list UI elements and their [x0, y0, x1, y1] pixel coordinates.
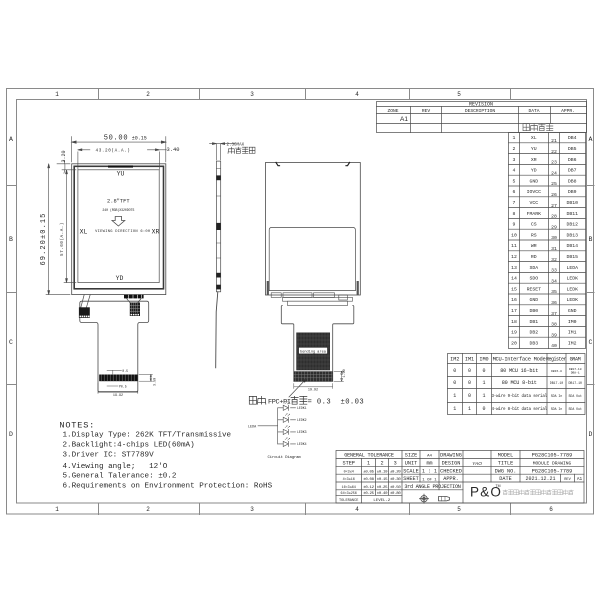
svg-text:20: 20 — [511, 340, 517, 346]
svg-text:DB6: DB6 — [568, 157, 577, 163]
svg-text:IM2: IM2 — [568, 340, 577, 346]
svg-text:6.Requirements on Environment: 6.Requirements on Environment Protection… — [63, 483, 273, 491]
svg-text:13: 13 — [511, 265, 517, 271]
svg-text:DB2: DB2 — [529, 330, 538, 336]
svg-text:69.20±0.15: 69.20±0.15 — [40, 212, 48, 265]
svg-text:24: 24 — [551, 170, 557, 176]
svg-text:15: 15 — [511, 286, 517, 292]
svg-text:SHEET: SHEET — [403, 476, 419, 482]
svg-text:0<3≤4: 0<3≤4 — [344, 469, 354, 474]
svg-text:4.Viewing angle; 12'O: 4.Viewing angle; 12'O — [63, 463, 168, 471]
svg-text:2021.12.21: 2021.12.21 — [525, 476, 555, 482]
svg-text:ZONE: ZONE — [387, 108, 398, 114]
svg-text:240 (RGB)X320DOTS: 240 (RGB)X320DOTS — [102, 208, 134, 212]
svg-text:2: 2 — [146, 506, 150, 513]
svg-text:1: 1 — [453, 406, 456, 412]
svg-text:3.40: 3.40 — [167, 147, 180, 153]
svg-text:3.50: 3.50 — [154, 378, 158, 386]
svg-text:0: 0 — [453, 380, 456, 386]
svg-text:SDO: SDO — [529, 276, 538, 282]
svg-text:35: 35 — [551, 289, 557, 295]
svg-text:VIEWING DIRECTION 6:00: VIEWING DIRECTION 6:00 — [95, 230, 150, 234]
svg-text:DB17-10: DB17-10 — [569, 381, 582, 385]
svg-text:10: 10 — [511, 232, 517, 238]
svg-text:1 : 1: 1 : 1 — [422, 468, 437, 474]
svg-text:UNIT: UNIT — [405, 461, 417, 467]
svg-text:1.00: 1.00 — [343, 369, 347, 377]
svg-text:DATA: DATA — [528, 108, 539, 114]
svg-text:39: 39 — [551, 332, 557, 338]
svg-text:17: 17 — [511, 308, 517, 314]
svg-text:3.20: 3.20 — [61, 150, 67, 162]
svg-text:DB8: DB8 — [568, 178, 577, 184]
svg-text:43.20(A.A.): 43.20(A.A.) — [96, 148, 131, 153]
svg-text:±0.05: ±0.05 — [363, 470, 374, 474]
svg-text:YU: YU — [531, 146, 537, 152]
svg-text:19: 19 — [511, 330, 517, 336]
svg-text:APPR.: APPR. — [561, 108, 575, 114]
svg-text:16: 16 — [511, 297, 517, 303]
svg-text:2: 2 — [380, 461, 383, 467]
svg-text:±0.15: ±0.15 — [132, 136, 147, 142]
svg-text:0: 0 — [468, 380, 471, 386]
svg-text:2.8"TFT: 2.8"TFT — [107, 199, 130, 205]
svg-text:A: A — [9, 136, 13, 143]
svg-text:DESIGN: DESIGN — [442, 461, 461, 467]
svg-text:26: 26 — [551, 192, 557, 198]
svg-text:XR: XR — [152, 229, 160, 236]
svg-text:0.5: 0.5 — [122, 369, 128, 373]
svg-text:DB13: DB13 — [566, 232, 578, 238]
svg-text:19.92: 19.92 — [308, 389, 318, 393]
svg-text:IM1: IM1 — [568, 330, 577, 336]
svg-text:0: 0 — [468, 393, 471, 399]
svg-text:38: 38 — [551, 322, 557, 328]
svg-text:P0.5: P0.5 — [119, 385, 127, 389]
svg-text:B: B — [589, 236, 593, 243]
svg-text:28: 28 — [551, 214, 557, 220]
svg-text:DB5: DB5 — [568, 146, 577, 152]
svg-text:22: 22 — [551, 149, 557, 155]
svg-text:27: 27 — [551, 203, 557, 209]
svg-text:50.00: 50.00 — [104, 135, 129, 143]
svg-text:31: 31 — [551, 246, 557, 252]
svg-text:DWG NO.: DWG NO. — [495, 468, 517, 474]
svg-text:YU: YU — [117, 171, 125, 178]
svg-text:LEDA: LEDA — [566, 265, 578, 271]
svg-text:4: 4 — [513, 168, 516, 174]
svg-text:B: B — [9, 236, 13, 243]
svg-text:SDA Out: SDA Out — [569, 394, 582, 398]
svg-text:YAO: YAO — [472, 461, 482, 467]
svg-text:30: 30 — [551, 235, 557, 241]
svg-text:3: 3 — [250, 91, 254, 98]
svg-text:DB1: DB1 — [529, 319, 538, 325]
svg-text:3: 3 — [250, 506, 254, 513]
svg-text:LEDK4: LEDK4 — [297, 442, 307, 446]
svg-text:PG28C105-7789: PG28C105-7789 — [532, 468, 572, 474]
svg-text:IOVCC: IOVCC — [527, 189, 542, 195]
svg-text:2.30MAX: 2.30MAX — [227, 143, 245, 147]
svg-text:XL: XL — [80, 229, 88, 236]
svg-text:IM0: IM0 — [479, 357, 488, 363]
svg-text:XL: XL — [531, 135, 537, 141]
svg-text:mm: mm — [426, 461, 432, 467]
svg-text:TM: TM — [496, 484, 501, 488]
svg-text:MCU-Interface Mode: MCU-Interface Mode — [493, 357, 546, 363]
svg-text:YD: YD — [531, 168, 537, 174]
svg-text:1: 1 — [453, 393, 456, 399]
svg-text:±0.20: ±0.20 — [390, 470, 401, 474]
svg-text:DB10: DB10 — [566, 200, 578, 206]
svg-text:GND: GND — [568, 308, 577, 314]
svg-text:4: 4 — [355, 91, 359, 98]
svg-text:D: D — [589, 431, 593, 438]
svg-text:9: 9 — [513, 222, 516, 228]
svg-text:6: 6 — [513, 189, 516, 195]
svg-text:2.Backlight:4-chips LED(60mA): 2.Backlight:4-chips LED(60mA) — [63, 442, 195, 450]
svg-text:3: 3 — [394, 461, 397, 467]
svg-text:DB15: DB15 — [566, 254, 578, 260]
svg-text:34: 34 — [551, 278, 557, 284]
svg-text:DESCRIPTION: DESCRIPTION — [465, 108, 496, 114]
svg-text:1: 1 — [513, 135, 516, 141]
svg-text:±0.80: ±0.80 — [390, 492, 401, 496]
svg-text:DATE: DATE — [499, 476, 511, 482]
svg-text:4<3≤16: 4<3≤16 — [343, 477, 355, 482]
svg-text:32: 32 — [551, 257, 557, 263]
svg-text:1: 1 — [482, 393, 485, 399]
svg-text:GND: GND — [529, 178, 538, 184]
svg-text:1 OF 1: 1 OF 1 — [422, 478, 437, 482]
svg-text:LEDK2: LEDK2 — [297, 418, 307, 422]
svg-text:REVISION: REVISION — [469, 102, 493, 108]
svg-text:16<3≤64: 16<3≤64 — [342, 485, 356, 490]
svg-text:11: 11 — [511, 243, 517, 249]
svg-text:A4: A4 — [427, 455, 432, 459]
svg-text:0: 0 — [468, 368, 471, 374]
svg-text:IM0: IM0 — [568, 319, 577, 325]
svg-text:RS: RS — [531, 232, 537, 238]
svg-text:DB4: DB4 — [568, 135, 577, 141]
svg-text:18: 18 — [511, 319, 517, 325]
svg-text:SDA In: SDA In — [551, 394, 563, 398]
svg-text:SIZE: SIZE — [405, 453, 417, 459]
svg-text:C: C — [589, 339, 593, 346]
svg-text:LEDK: LEDK — [566, 297, 578, 303]
svg-text:1.Display Type: 262K TFT/Trans: 1.Display Type: 262K TFT/Transmissive — [63, 432, 232, 440]
svg-text:LEDK3: LEDK3 — [297, 430, 307, 434]
svg-text:MODEL: MODEL — [498, 453, 514, 459]
svg-text:DRAWING: DRAWING — [440, 453, 462, 459]
svg-text:4: 4 — [355, 506, 359, 513]
svg-text:±0.25: ±0.25 — [377, 486, 388, 490]
svg-text:±0.15: ±0.15 — [377, 478, 388, 482]
svg-text:DB12: DB12 — [566, 222, 578, 228]
svg-text:29: 29 — [551, 224, 557, 230]
svg-text:XR: XR — [531, 157, 537, 163]
svg-text:1: 1 — [468, 406, 471, 412]
svg-text:C: C — [9, 339, 13, 346]
svg-text:GND: GND — [529, 297, 538, 303]
svg-text:FPC+PI: FPC+PI — [268, 398, 291, 406]
svg-text:±0.08: ±0.08 — [363, 478, 374, 482]
svg-text:23: 23 — [551, 160, 557, 166]
svg-text:DB8-1: DB8-1 — [571, 371, 580, 374]
svg-text:12: 12 — [511, 254, 517, 260]
svg-text:±0.30: ±0.30 — [390, 478, 401, 482]
svg-text:GRAM: GRAM — [570, 357, 581, 363]
svg-text:2: 2 — [146, 91, 150, 98]
svg-text:TOLERANCE: TOLERANCE — [339, 499, 358, 503]
svg-text:GENERAL TOLERANCE: GENERAL TOLERANCE — [344, 453, 394, 459]
svg-text:5: 5 — [457, 506, 461, 513]
svg-text:SDA: SDA — [529, 265, 538, 271]
svg-text:2: 2 — [513, 146, 516, 152]
svg-text:DB15-0: DB15-0 — [551, 370, 562, 373]
svg-text:VCC: VCC — [529, 200, 538, 206]
svg-text:DB11: DB11 — [566, 211, 578, 217]
svg-text:25: 25 — [551, 181, 557, 187]
svg-text:0: 0 — [482, 406, 485, 412]
svg-text:1: 1 — [367, 461, 370, 467]
svg-text:80 MCU 8-bit: 80 MCU 8-bit — [502, 380, 537, 386]
svg-text:3.Driver IC: ST7789V: 3.Driver IC: ST7789V — [63, 452, 155, 460]
svg-text:±0.25: ±0.25 — [363, 492, 374, 496]
svg-text:1: 1 — [55, 506, 59, 513]
svg-text:80 MCU 16-bit: 80 MCU 16-bit — [500, 368, 538, 374]
svg-text:LEDK: LEDK — [566, 276, 578, 282]
svg-text:bending area: bending area — [300, 349, 327, 354]
svg-text:DB17-10: DB17-10 — [550, 381, 563, 385]
svg-text:33: 33 — [551, 268, 557, 274]
svg-text:A1: A1 — [577, 477, 583, 482]
svg-text:5: 5 — [513, 178, 516, 184]
svg-text:Circuit Diagram: Circuit Diagram — [267, 455, 301, 460]
svg-text:DB9: DB9 — [568, 189, 577, 195]
svg-text:RD: RD — [531, 254, 537, 260]
svg-text:SDA In: SDA In — [551, 407, 563, 411]
svg-text:= 0.3 ±0.03: = 0.3 ±0.03 — [308, 398, 365, 406]
svg-text:CHECKED: CHECKED — [440, 468, 462, 474]
svg-text:±0.12: ±0.12 — [363, 486, 374, 490]
svg-text:SDA Out: SDA Out — [569, 407, 582, 411]
svg-text:1: 1 — [55, 91, 59, 98]
svg-text:0: 0 — [453, 368, 456, 374]
svg-text:TITLE: TITLE — [498, 461, 514, 467]
svg-text:3: 3 — [513, 157, 516, 163]
svg-text:36: 36 — [551, 300, 557, 306]
svg-text:37: 37 — [551, 311, 557, 317]
svg-text:STEP: STEP — [342, 461, 354, 467]
svg-text:0: 0 — [482, 368, 485, 374]
svg-text:DB0: DB0 — [529, 308, 538, 314]
svg-text:FMARK: FMARK — [527, 211, 542, 217]
svg-text:LEDK1: LEDK1 — [297, 406, 307, 410]
svg-text:3rd ANGLE PROJECTION: 3rd ANGLE PROJECTION — [404, 484, 460, 490]
svg-text:DB14: DB14 — [566, 243, 578, 249]
svg-text:4-wire 8-bit data serial: 4-wire 8-bit data serial — [491, 407, 547, 412]
svg-text:A1: A1 — [400, 116, 408, 123]
svg-text:SCALE: SCALE — [403, 468, 419, 474]
svg-text:±0.10: ±0.10 — [377, 470, 388, 474]
svg-text:REV: REV — [422, 108, 431, 114]
svg-text:APPR.: APPR. — [443, 476, 459, 482]
svg-text:NOTES:: NOTES: — [59, 421, 95, 431]
svg-text:5.General Talerance: ±0.2: 5.General Talerance: ±0.2 — [63, 473, 177, 481]
svg-text:8: 8 — [513, 211, 516, 217]
svg-text:IM1: IM1 — [465, 357, 474, 363]
svg-text:LEDA: LEDA — [248, 425, 257, 429]
svg-text:1: 1 — [482, 380, 485, 386]
svg-text:LEDK: LEDK — [566, 286, 578, 292]
svg-text:40: 40 — [551, 343, 557, 349]
svg-text:CS: CS — [531, 222, 537, 228]
svg-text:19.92: 19.92 — [113, 394, 123, 398]
svg-text:57.60(A.A.): 57.60(A.A.) — [60, 222, 65, 256]
svg-text:PG28C105-7789: PG28C105-7789 — [532, 453, 572, 459]
svg-text:DB3: DB3 — [529, 340, 538, 346]
svg-text:RESET: RESET — [527, 286, 542, 292]
svg-text:DB7: DB7 — [568, 168, 577, 174]
svg-text:WR: WR — [531, 243, 537, 249]
svg-text:D: D — [9, 431, 13, 438]
svg-text:5: 5 — [457, 91, 461, 98]
svg-text:YD: YD — [116, 275, 124, 282]
svg-text:LEVEL-2: LEVEL-2 — [373, 499, 390, 503]
svg-text:MODULE DRAWING: MODULE DRAWING — [533, 461, 572, 467]
svg-text:±0.50: ±0.50 — [390, 486, 401, 490]
svg-text:A: A — [589, 136, 593, 143]
svg-text:64<3≤256: 64<3≤256 — [341, 491, 357, 496]
svg-text:6: 6 — [549, 506, 553, 513]
svg-text:REV: REV — [564, 478, 571, 482]
svg-text:IM2: IM2 — [450, 357, 459, 363]
svg-text:3-wire 9-bit data serial: 3-wire 9-bit data serial — [491, 394, 547, 399]
svg-text:7: 7 — [513, 200, 516, 206]
svg-text:±0.40: ±0.40 — [377, 492, 388, 496]
svg-text:Register: Register — [546, 357, 567, 363]
svg-text:21: 21 — [551, 138, 557, 144]
svg-text:14: 14 — [511, 276, 517, 282]
